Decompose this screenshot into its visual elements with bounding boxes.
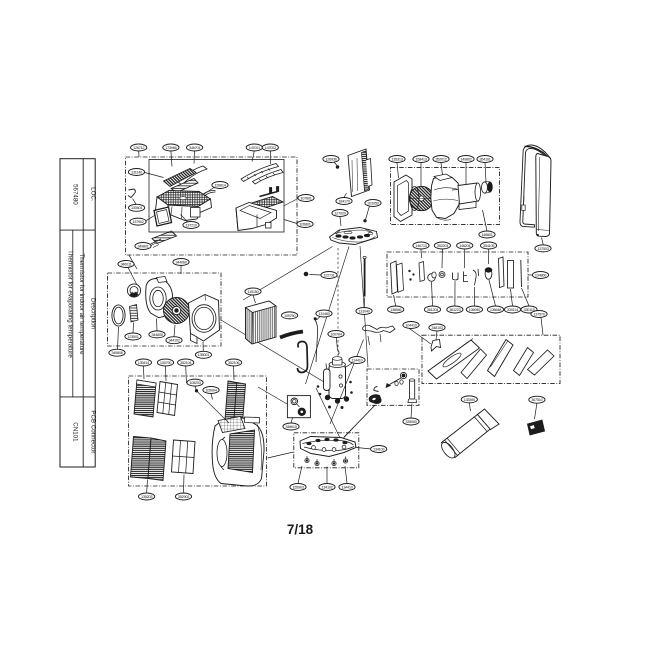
svg-text:149802: 149802: [460, 156, 471, 161]
svg-text:352012: 352012: [435, 156, 446, 161]
svg-text:184170: 184170: [338, 198, 350, 203]
svg-text:126814: 126814: [214, 182, 226, 187]
svg-text:107601: 107601: [300, 195, 311, 200]
svg-text:126936: 126936: [325, 156, 336, 161]
svg-text:137570: 137570: [533, 311, 545, 316]
svg-text:348103: 348103: [431, 325, 442, 330]
svg-text:PCB Connector: PCB Connector: [89, 410, 96, 453]
svg-text:Thermistor for evaporating tem: Thermistor for evaporating temperature: [66, 250, 73, 358]
svg-text:349801: 349801: [137, 243, 148, 248]
svg-text:146801: 146801: [481, 232, 492, 237]
svg-text:130601: 130601: [131, 205, 142, 210]
svg-text:100704: 100704: [330, 331, 342, 336]
svg-text:147002: 147002: [265, 145, 276, 150]
svg-text:109750: 109750: [284, 313, 296, 318]
svg-text:344805: 344805: [151, 332, 162, 337]
svg-text:567480: 567480: [72, 184, 79, 205]
svg-text:135414: 135414: [138, 360, 150, 365]
svg-text:158413: 158413: [415, 156, 426, 161]
svg-text:367510: 367510: [531, 397, 543, 402]
svg-text:7/18: 7/18: [287, 522, 314, 537]
svg-text:352203: 352203: [437, 243, 448, 248]
svg-text:104410: 104410: [405, 322, 417, 327]
svg-text:135001: 135001: [198, 352, 209, 357]
svg-text:352902: 352902: [178, 494, 189, 499]
svg-text:127020: 127020: [334, 210, 346, 215]
svg-text:354101: 354101: [479, 156, 490, 161]
svg-text:137210: 137210: [185, 222, 197, 227]
svg-text:134103: 134103: [373, 446, 384, 451]
svg-text:133390: 133390: [464, 397, 476, 402]
svg-text:123501: 123501: [127, 334, 138, 339]
svg-text:135790: 135790: [160, 360, 172, 365]
svg-text:134102: 134102: [321, 484, 332, 489]
svg-text:344060: 344060: [175, 259, 187, 264]
svg-text:330114: 330114: [507, 307, 519, 312]
svg-text:136648: 136648: [490, 307, 501, 312]
svg-text:346011: 346011: [121, 261, 132, 266]
svg-text:105203: 105203: [189, 380, 200, 385]
svg-text:146713: 146713: [415, 243, 426, 248]
svg-text:131040: 131040: [358, 308, 370, 313]
svg-text:201050: 201050: [367, 200, 379, 205]
svg-text:135203: 135203: [141, 494, 152, 499]
svg-text:114410: 114410: [352, 357, 364, 362]
svg-text:136846: 136846: [390, 307, 401, 312]
svg-text:122731: 122731: [323, 272, 334, 277]
svg-text:136940: 136940: [469, 307, 481, 312]
svg-text:137503: 137503: [537, 246, 548, 251]
svg-text:CN101: CN101: [72, 422, 79, 442]
svg-text:344102: 344102: [168, 338, 179, 343]
svg-text:335060: 335060: [405, 419, 417, 424]
svg-text:131140: 131140: [131, 169, 143, 174]
svg-text:105801: 105801: [299, 221, 310, 226]
svg-text:131460: 131460: [318, 311, 330, 316]
svg-text:LOC.: LOC.: [89, 187, 96, 202]
svg-text:134860: 134860: [535, 272, 547, 277]
svg-text:146204: 146204: [459, 243, 471, 248]
svg-text:346701: 346701: [189, 145, 200, 150]
svg-text:361204: 361204: [427, 307, 439, 312]
svg-text:354105: 354105: [483, 243, 494, 248]
svg-text:147001: 147001: [249, 145, 260, 150]
svg-text:361223: 361223: [449, 307, 460, 312]
svg-text:126712: 126712: [133, 145, 144, 150]
svg-text:137902: 137902: [132, 219, 143, 224]
svg-text:348610: 348610: [285, 424, 297, 429]
svg-text:155903: 155903: [292, 484, 303, 489]
svg-text:115150: 115150: [248, 289, 260, 294]
svg-text:352106: 352106: [228, 360, 239, 365]
svg-text:135313: 135313: [391, 156, 402, 161]
svg-text:134410: 134410: [341, 484, 353, 489]
svg-text:Description: Description: [89, 298, 96, 330]
svg-text:352104: 352104: [180, 360, 192, 365]
svg-text:349806: 349806: [111, 350, 122, 355]
svg-text:173966: 173966: [165, 145, 176, 150]
svg-text:Thermistor for indoor air temp: Thermistor for indoor air temperature: [78, 253, 85, 355]
svg-text:105904: 105904: [205, 387, 217, 392]
